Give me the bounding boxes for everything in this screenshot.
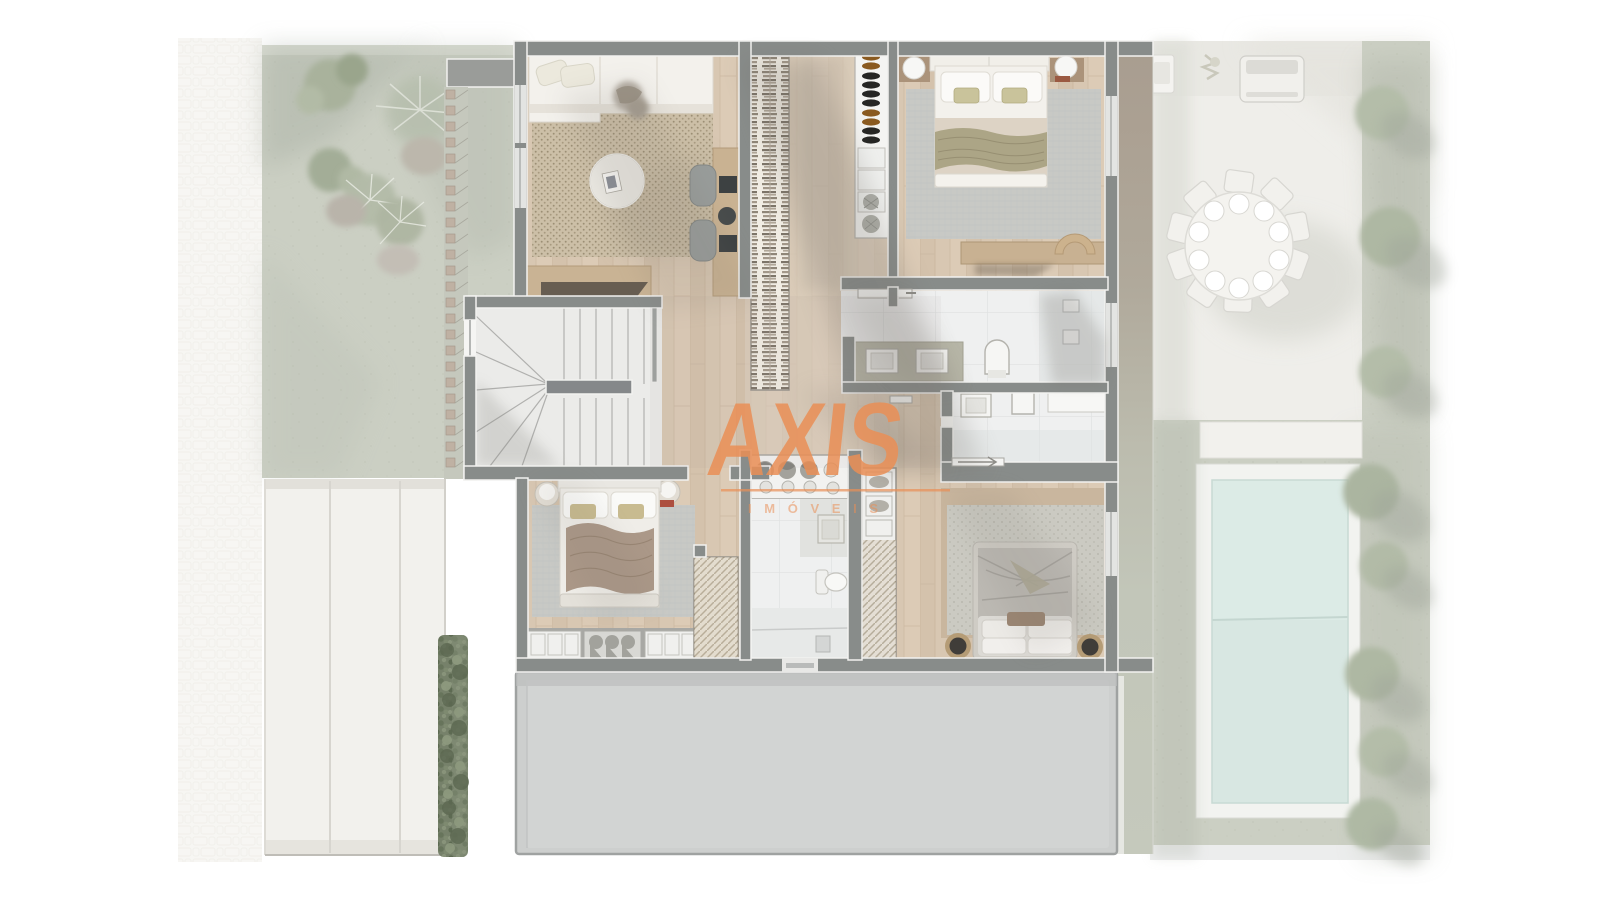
svg-text:AXIS: AXIS [703,382,909,498]
